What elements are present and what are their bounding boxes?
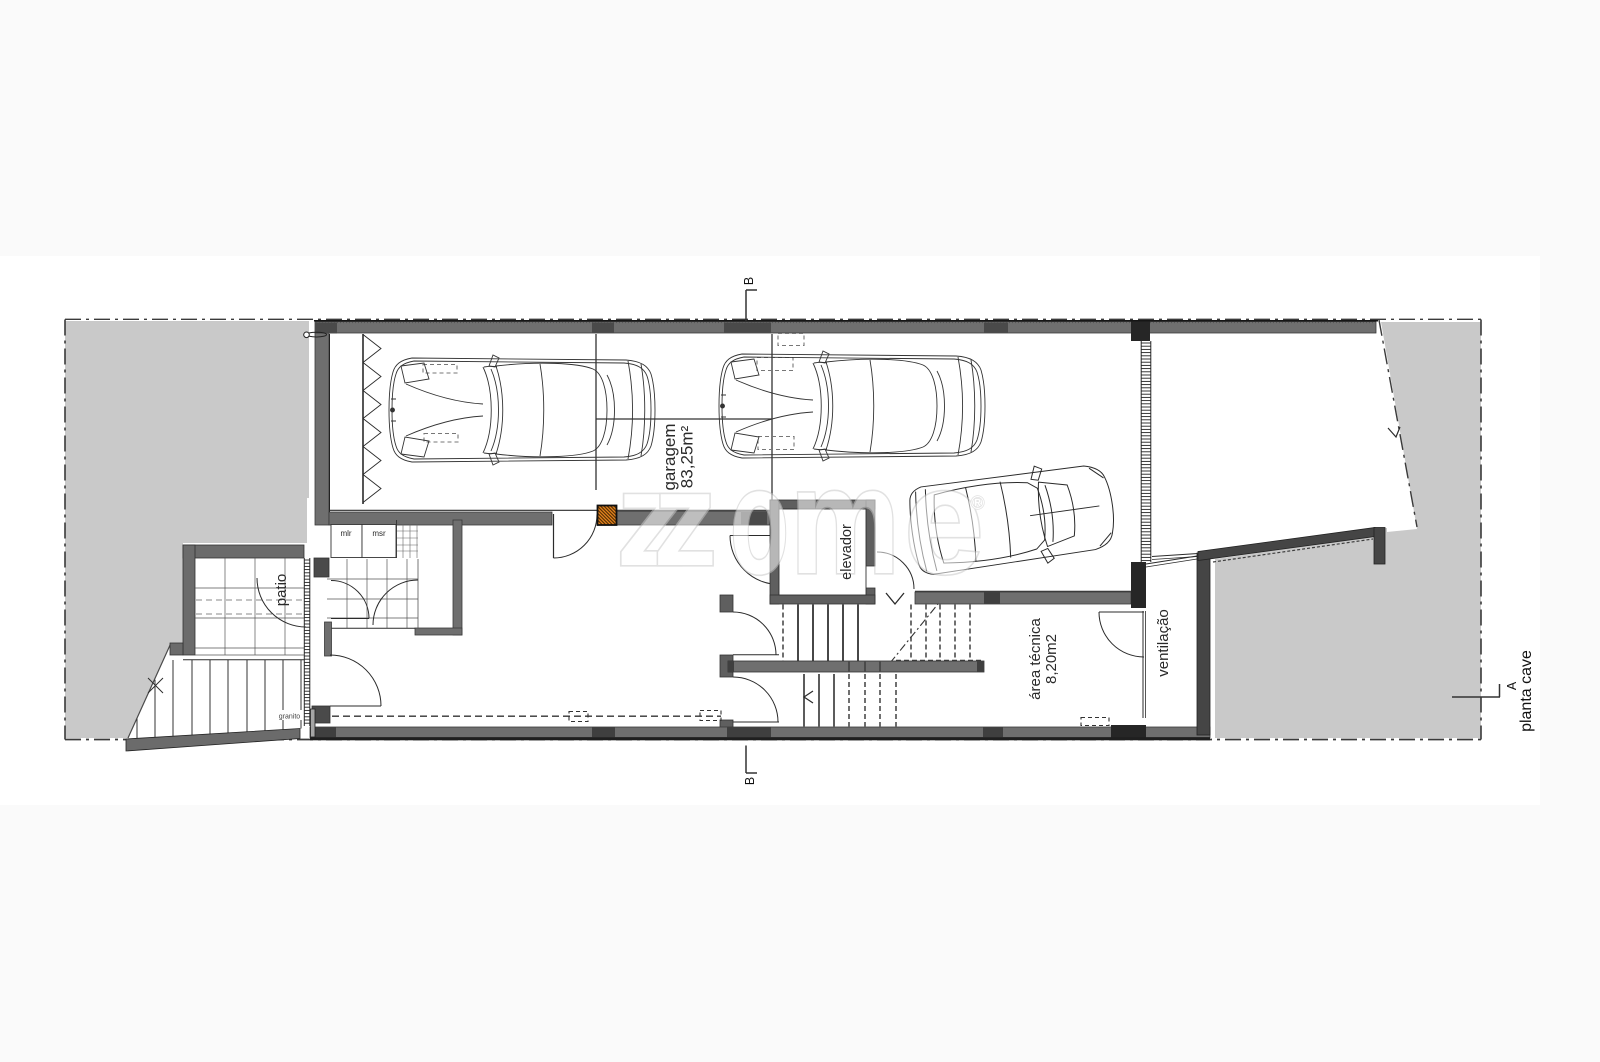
svg-text:garagem83,25m²: garagem83,25m² [660, 423, 697, 490]
svg-text:B: B [743, 777, 757, 785]
svg-text:msr: msr [372, 529, 386, 538]
svg-text:mlr: mlr [340, 529, 351, 538]
svg-text:A: A [1505, 681, 1519, 690]
svg-text:patio: patio [273, 574, 290, 607]
svg-text:B: B [742, 277, 756, 285]
svg-text:planta cave: planta cave [1518, 650, 1535, 732]
svg-text:e: e [904, 436, 984, 606]
svg-text:ventilação: ventilação [1155, 609, 1172, 677]
svg-text:elevador: elevador [839, 524, 855, 580]
svg-text:®: ® [971, 493, 984, 513]
svg-text:granito: granito [279, 714, 301, 721]
svg-text:o: o [730, 436, 789, 606]
